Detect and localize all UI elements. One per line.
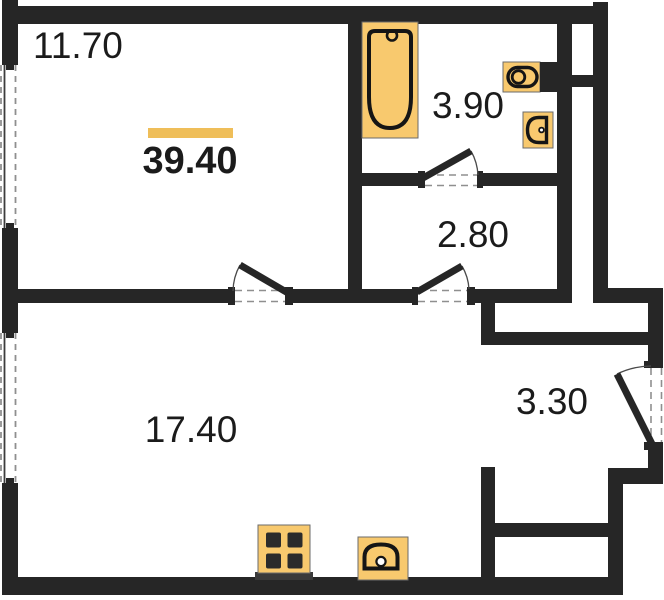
washbasin (523, 112, 553, 148)
wall-bathroom-bottom-left (362, 173, 418, 186)
kitchen-sink (358, 537, 408, 580)
room-area-label-11-70: 11.70 (33, 25, 123, 66)
wall-right-entry-bottom (648, 442, 663, 470)
wall-jog-bottom-right (608, 468, 663, 484)
total-area-accent-bar (148, 128, 233, 138)
wall-top (14, 6, 608, 24)
walls (2, 0, 663, 595)
window-sill-nub (6, 65, 14, 70)
wall-duct-bottom (481, 332, 652, 345)
room-area-label-17-40: 17.40 (145, 409, 238, 450)
wall-pier-left-mid (2, 228, 18, 333)
bathroom-door-leaf (423, 151, 471, 178)
room-area-label-2-80: 2.80 (437, 214, 509, 255)
wall-divider-b (293, 289, 412, 303)
wall-bottom (14, 577, 623, 595)
kitchen-sink-drain-icon (376, 557, 385, 566)
burner-icon (288, 533, 303, 548)
burner-icon (266, 533, 281, 548)
burner-icon (288, 554, 303, 569)
cooktop (255, 525, 313, 580)
window-sill-nub (6, 333, 14, 338)
burner-icon (266, 554, 281, 569)
wall-closet-top (481, 523, 621, 537)
wall-entry-left (481, 467, 495, 578)
wall-divider-a (18, 289, 228, 303)
room-door-leaf (240, 265, 288, 293)
washbasin-drain-icon (539, 128, 544, 133)
entry-door-leaf (617, 374, 652, 444)
door-jamb (467, 287, 475, 305)
corridor-door-arc (462, 266, 469, 289)
entry-door-stop (644, 361, 663, 368)
toilet-tank (540, 62, 558, 92)
wall-bathroom-left (348, 20, 362, 303)
window-sill-nub (6, 223, 14, 228)
door-jamb (228, 287, 235, 305)
floor-plan-page: 11.70 39.40 3.90 2.80 17.40 3.30 (0, 0, 664, 600)
room-area-label-3-90: 3.90 (432, 85, 504, 126)
wall-right-upper (593, 2, 608, 290)
window-sill-nub (6, 478, 14, 483)
wall-inner-right (557, 20, 572, 303)
wall-bathroom-bottom-right (483, 173, 557, 186)
bathroom-door-arc (471, 151, 478, 175)
total-area-label: 39.40 (142, 140, 237, 182)
floor-plan: 11.70 39.40 3.90 2.80 17.40 3.30 (0, 0, 664, 600)
corridor-door-leaf (417, 266, 462, 292)
wall-shaft-connector (572, 75, 593, 87)
wall-jog-top-right (593, 288, 663, 303)
bathtub (362, 22, 418, 138)
toilet (503, 62, 558, 92)
room-area-label-3-30: 3.30 (516, 381, 588, 422)
